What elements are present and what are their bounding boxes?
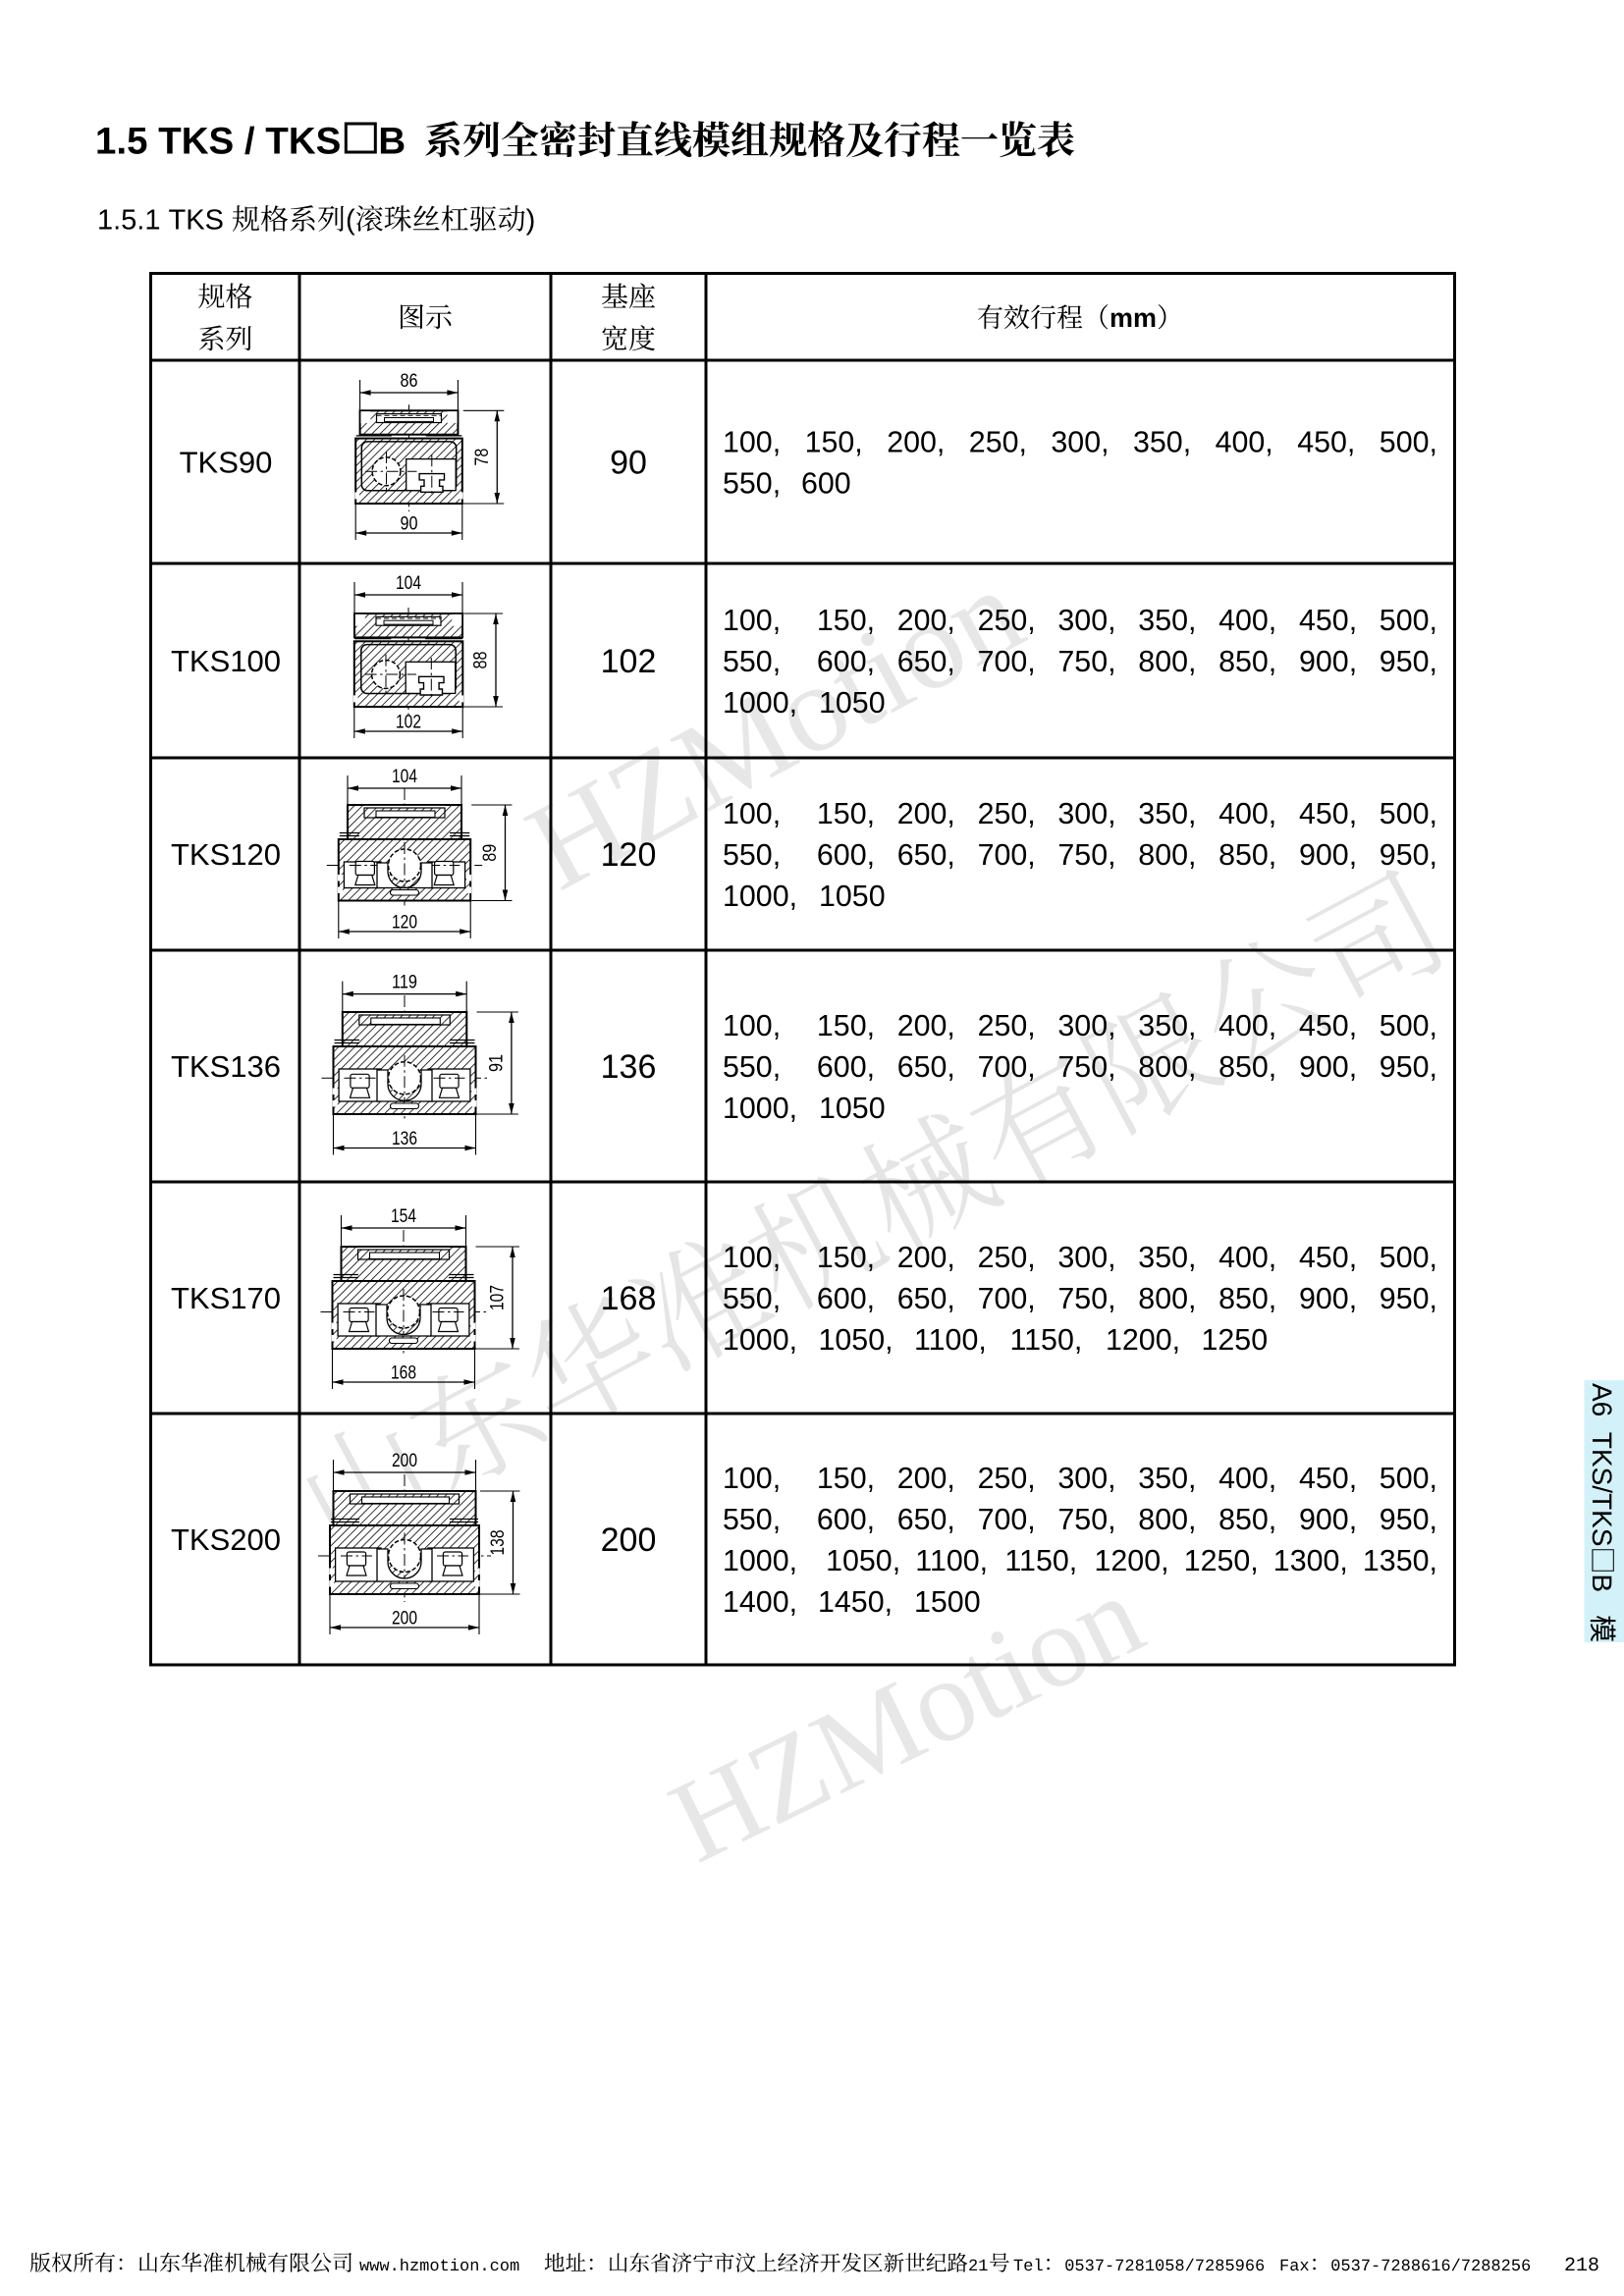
svg-text:104: 104 bbox=[392, 767, 417, 787]
svg-text:TKS90: TKS90 bbox=[180, 446, 273, 480]
svg-text:850,: 850, bbox=[1218, 1050, 1276, 1084]
svg-text:700,: 700, bbox=[978, 838, 1036, 872]
svg-text:750,: 750, bbox=[1057, 1503, 1115, 1536]
svg-text:800,: 800, bbox=[1138, 1050, 1196, 1084]
svg-text:600,: 600, bbox=[817, 1503, 875, 1536]
svg-text:350,: 350, bbox=[1138, 1241, 1196, 1274]
svg-text:900,: 900, bbox=[1299, 1282, 1357, 1315]
svg-text:650,: 650, bbox=[897, 1503, 955, 1536]
svg-text:TKS170: TKS170 bbox=[171, 1281, 281, 1315]
svg-text:1000,: 1000, bbox=[723, 1323, 797, 1357]
svg-text:450,: 450, bbox=[1299, 1009, 1357, 1042]
svg-text:450,: 450, bbox=[1299, 1241, 1357, 1274]
svg-text:850,: 850, bbox=[1218, 1282, 1276, 1315]
svg-text:200: 200 bbox=[392, 1609, 417, 1629]
svg-text:100,: 100, bbox=[723, 426, 781, 459]
svg-text:1000,: 1000, bbox=[723, 686, 797, 720]
svg-text:100,: 100, bbox=[723, 797, 781, 830]
svg-text:200,: 200, bbox=[897, 604, 955, 637]
svg-text:150,: 150, bbox=[817, 1462, 875, 1495]
svg-text:400,: 400, bbox=[1218, 604, 1276, 637]
svg-text:90: 90 bbox=[610, 445, 647, 482]
svg-text:1450,: 1450, bbox=[818, 1585, 893, 1619]
svg-text:250,: 250, bbox=[978, 1009, 1036, 1042]
svg-text:200,: 200, bbox=[897, 1241, 955, 1274]
svg-text:600,: 600, bbox=[817, 1050, 875, 1084]
svg-text:350,: 350, bbox=[1138, 797, 1196, 830]
svg-text:1100,: 1100, bbox=[915, 1544, 988, 1577]
svg-text:300,: 300, bbox=[1057, 1241, 1115, 1274]
svg-text:TKS120: TKS120 bbox=[171, 837, 281, 872]
svg-text:1250: 1250 bbox=[1202, 1323, 1269, 1357]
svg-text:TKS136: TKS136 bbox=[171, 1049, 281, 1084]
svg-text:250,: 250, bbox=[978, 1462, 1036, 1495]
svg-text:102: 102 bbox=[396, 713, 421, 733]
svg-text:750,: 750, bbox=[1057, 645, 1115, 678]
svg-text:600: 600 bbox=[801, 467, 851, 501]
svg-text:86: 86 bbox=[401, 371, 418, 392]
svg-text:1000,: 1000, bbox=[723, 1092, 797, 1125]
svg-text:150,: 150, bbox=[805, 426, 863, 459]
svg-text:TKS200: TKS200 bbox=[171, 1522, 281, 1557]
svg-text:400,: 400, bbox=[1218, 1241, 1276, 1274]
svg-text:700,: 700, bbox=[978, 1050, 1036, 1084]
svg-text:650,: 650, bbox=[897, 645, 955, 678]
svg-text:600,: 600, bbox=[817, 645, 875, 678]
svg-text:500,: 500, bbox=[1380, 1009, 1437, 1042]
svg-text:1000,: 1000, bbox=[723, 880, 797, 913]
svg-text:1350,: 1350, bbox=[1363, 1544, 1437, 1577]
svg-text:1200,: 1200, bbox=[1095, 1544, 1169, 1577]
svg-text:100,: 100, bbox=[723, 1462, 781, 1495]
svg-text:78: 78 bbox=[472, 449, 493, 466]
svg-text:1250,: 1250, bbox=[1184, 1544, 1259, 1577]
svg-text:150,: 150, bbox=[817, 1009, 875, 1042]
svg-text:168: 168 bbox=[391, 1363, 416, 1384]
svg-text:500,: 500, bbox=[1380, 1462, 1437, 1495]
svg-text:100,: 100, bbox=[723, 1241, 781, 1274]
svg-text:138: 138 bbox=[488, 1530, 509, 1556]
svg-text:91: 91 bbox=[486, 1054, 507, 1072]
svg-text:700,: 700, bbox=[978, 1503, 1036, 1536]
svg-text:400,: 400, bbox=[1218, 797, 1276, 830]
svg-text:250,: 250, bbox=[978, 797, 1036, 830]
svg-text:350,: 350, bbox=[1138, 1009, 1196, 1042]
svg-text:900,: 900, bbox=[1299, 645, 1357, 678]
svg-text:250,: 250, bbox=[978, 604, 1036, 637]
svg-text:400,: 400, bbox=[1218, 1462, 1276, 1495]
svg-text:1050,: 1050, bbox=[826, 1544, 900, 1577]
svg-text:800,: 800, bbox=[1138, 1503, 1196, 1536]
svg-text:400,: 400, bbox=[1218, 1009, 1276, 1042]
svg-text:1050: 1050 bbox=[819, 880, 886, 913]
svg-text:300,: 300, bbox=[1051, 426, 1109, 459]
svg-text:88: 88 bbox=[471, 652, 492, 669]
svg-text:150,: 150, bbox=[817, 797, 875, 830]
svg-text:800,: 800, bbox=[1138, 838, 1196, 872]
svg-text:102: 102 bbox=[601, 643, 657, 680]
svg-text:300,: 300, bbox=[1057, 604, 1115, 637]
svg-text:700,: 700, bbox=[978, 645, 1036, 678]
svg-text:800,: 800, bbox=[1138, 1282, 1196, 1315]
svg-text:400,: 400, bbox=[1216, 426, 1273, 459]
svg-text:100,: 100, bbox=[723, 1009, 781, 1042]
svg-text:450,: 450, bbox=[1299, 1462, 1357, 1495]
svg-text:550,: 550, bbox=[723, 1282, 781, 1315]
svg-text:750,: 750, bbox=[1057, 1282, 1115, 1315]
svg-text:1200,: 1200, bbox=[1106, 1323, 1180, 1357]
svg-text:850,: 850, bbox=[1218, 1503, 1276, 1536]
svg-text:200: 200 bbox=[601, 1522, 657, 1559]
svg-text:104: 104 bbox=[396, 573, 421, 594]
svg-text:900,: 900, bbox=[1299, 1050, 1357, 1084]
svg-text:136: 136 bbox=[392, 1129, 417, 1149]
svg-text:650,: 650, bbox=[897, 838, 955, 872]
svg-text:100,: 100, bbox=[723, 604, 781, 637]
svg-text:90: 90 bbox=[401, 514, 418, 535]
svg-text:900,: 900, bbox=[1299, 1503, 1357, 1536]
svg-text:TKS100: TKS100 bbox=[171, 644, 281, 678]
svg-text:150,: 150, bbox=[817, 604, 875, 637]
svg-text:119: 119 bbox=[392, 973, 417, 993]
svg-text:550,: 550, bbox=[723, 467, 781, 501]
svg-text:168: 168 bbox=[601, 1280, 657, 1317]
svg-text:850,: 850, bbox=[1218, 838, 1276, 872]
svg-text:450,: 450, bbox=[1299, 797, 1357, 830]
svg-text:500,: 500, bbox=[1380, 797, 1437, 830]
svg-text:1000,: 1000, bbox=[723, 1544, 797, 1577]
svg-text:550,: 550, bbox=[723, 645, 781, 678]
svg-text:1100,: 1100, bbox=[914, 1323, 987, 1357]
svg-text:1050,: 1050, bbox=[819, 1323, 893, 1357]
svg-text:250,: 250, bbox=[978, 1241, 1036, 1274]
svg-text:950,: 950, bbox=[1380, 1503, 1437, 1536]
svg-text:200,: 200, bbox=[887, 426, 945, 459]
svg-text:1150,: 1150, bbox=[1004, 1544, 1077, 1577]
svg-text:1150,: 1150, bbox=[1010, 1323, 1083, 1357]
svg-text:950,: 950, bbox=[1380, 838, 1437, 872]
svg-text:120: 120 bbox=[392, 913, 417, 934]
svg-text:750,: 750, bbox=[1057, 838, 1115, 872]
svg-text:950,: 950, bbox=[1380, 1050, 1437, 1084]
svg-text:150,: 150, bbox=[817, 1241, 875, 1274]
svg-text:700,: 700, bbox=[978, 1282, 1036, 1315]
svg-text:300,: 300, bbox=[1057, 1462, 1115, 1495]
svg-text:200: 200 bbox=[392, 1451, 417, 1471]
svg-text:750,: 750, bbox=[1057, 1050, 1115, 1084]
svg-text:1050: 1050 bbox=[819, 1092, 886, 1125]
svg-text:450,: 450, bbox=[1299, 604, 1357, 637]
svg-text:1050: 1050 bbox=[819, 686, 886, 720]
svg-text:600,: 600, bbox=[817, 1282, 875, 1315]
svg-text:200,: 200, bbox=[897, 797, 955, 830]
svg-text:850,: 850, bbox=[1218, 645, 1276, 678]
svg-text:650,: 650, bbox=[897, 1282, 955, 1315]
svg-text:600,: 600, bbox=[817, 838, 875, 872]
svg-text:350,: 350, bbox=[1138, 604, 1196, 637]
svg-text:120: 120 bbox=[601, 836, 657, 874]
svg-text:950,: 950, bbox=[1380, 1282, 1437, 1315]
svg-text:500,: 500, bbox=[1380, 604, 1437, 637]
svg-text:200,: 200, bbox=[897, 1009, 955, 1042]
svg-text:450,: 450, bbox=[1297, 426, 1355, 459]
svg-text:1300,: 1300, bbox=[1273, 1544, 1348, 1577]
svg-text:200,: 200, bbox=[897, 1462, 955, 1495]
svg-text:136: 136 bbox=[601, 1048, 657, 1086]
svg-text:950,: 950, bbox=[1380, 645, 1437, 678]
svg-text:800,: 800, bbox=[1138, 645, 1196, 678]
svg-text:107: 107 bbox=[488, 1285, 509, 1310]
svg-text:1400,: 1400, bbox=[723, 1585, 797, 1619]
svg-text:300,: 300, bbox=[1057, 1009, 1115, 1042]
svg-text:350,: 350, bbox=[1133, 426, 1191, 459]
svg-text:500,: 500, bbox=[1380, 426, 1437, 459]
svg-text:550,: 550, bbox=[723, 1503, 781, 1536]
svg-text:1500: 1500 bbox=[914, 1585, 981, 1619]
svg-text:550,: 550, bbox=[723, 1050, 781, 1084]
svg-text:900,: 900, bbox=[1299, 838, 1357, 872]
svg-text:89: 89 bbox=[480, 844, 501, 862]
svg-text:350,: 350, bbox=[1138, 1462, 1196, 1495]
svg-text:154: 154 bbox=[391, 1206, 416, 1227]
svg-text:650,: 650, bbox=[897, 1050, 955, 1084]
svg-text:250,: 250, bbox=[969, 426, 1027, 459]
svg-text:550,: 550, bbox=[723, 838, 781, 872]
svg-text:500,: 500, bbox=[1380, 1241, 1437, 1274]
svg-text:300,: 300, bbox=[1057, 797, 1115, 830]
